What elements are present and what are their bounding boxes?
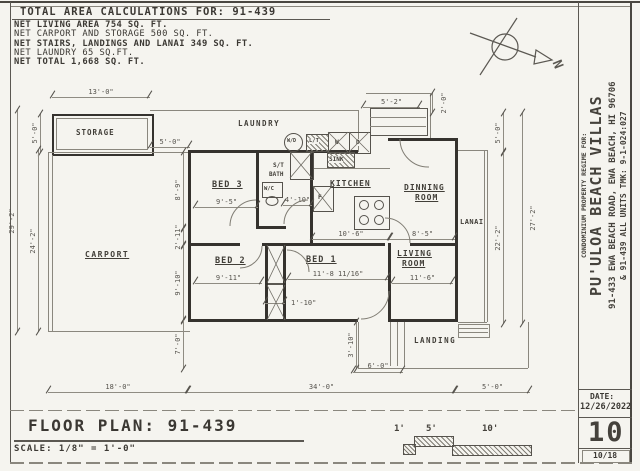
dim-label: 27'-2" [529, 205, 537, 230]
north-label: N [549, 58, 566, 71]
carport-left2 [52, 155, 53, 332]
entry-top [366, 93, 430, 94]
drawing-sheet: TOTAL AREA CALCULATIONS FOR: 91-439 NET … [0, 0, 640, 471]
dim-right-outer: 27'-2" [522, 113, 523, 323]
dim-label: 6'-0" [367, 362, 388, 370]
landing-right [528, 322, 529, 368]
dim-landing-depth: 3'-10" [356, 322, 357, 368]
room-label-bed2: BED 2 [215, 256, 246, 266]
room-label-carport: CARPORT [85, 250, 129, 259]
north-arrowhead [534, 50, 552, 64]
dim-bottom-left: 7'-0" [183, 320, 184, 368]
stove-box [354, 196, 390, 230]
dim-bed1-width: 11'-8 11/16" [288, 279, 388, 280]
room-label-lanai: LANAI [460, 218, 484, 226]
dim-bed2-width: 9'-11" [195, 283, 262, 284]
carport-left [48, 152, 49, 332]
kitchen-sink-label: SINK [329, 156, 343, 163]
pagebox-bottom [578, 448, 632, 449]
north-arrow [470, 18, 552, 75]
dim-label: 8'-5" [412, 230, 433, 238]
carport-top [48, 152, 188, 153]
dim-label: 10'-6" [338, 230, 363, 238]
landing-left [358, 322, 359, 368]
lanai-top [458, 150, 487, 151]
dim-label: 4'-10" [285, 196, 310, 204]
scalebar-label-5: 5' [426, 424, 437, 434]
closet-right [283, 243, 286, 322]
kitchen-counter [312, 168, 390, 169]
dim-label: 5'-0" [482, 383, 503, 391]
lanai-steps [458, 324, 490, 338]
dim-entry-width: 5'-2" [363, 107, 420, 108]
door-arc-entry [400, 139, 429, 167]
north-arrow-line [470, 33, 536, 57]
scalebar-bar-10 [452, 445, 532, 456]
floor-plan-scale: SCALE: 1/8" = 1'-0" [14, 444, 136, 454]
room-label-bath-2: BATH [269, 171, 283, 178]
wc-label: W/C [264, 186, 274, 192]
wall-mid-b [262, 243, 385, 246]
entry-steps [370, 108, 428, 136]
dim-label: 29'-2" [8, 208, 16, 233]
dim-left-outer: 29'-2" [17, 110, 18, 331]
entry-step-line [370, 117, 426, 118]
wall-right [455, 138, 458, 322]
dim-dining-width: 8'-5" [390, 239, 455, 240]
dim-label: 3'-10" [347, 332, 355, 357]
wall-mid-c [410, 243, 458, 246]
dim-lanai-top: 5'-0" [503, 113, 504, 152]
lanai-bottom [458, 322, 487, 323]
dim-entry-depth: 2'-0" [432, 93, 433, 112]
dim-storage-width: 13'-0" [52, 97, 150, 98]
dryer-box [349, 132, 371, 154]
plan-overlay: N [0, 0, 640, 471]
room-label-landing: LANDING [414, 336, 456, 345]
dim-right-inner: 22'-2" [503, 152, 504, 323]
dim-living-width: 11'-6" [392, 283, 453, 284]
dryer-letter: D [356, 139, 360, 146]
scalebar-label-10: 10' [482, 424, 498, 434]
washer-letter: W [335, 139, 339, 146]
room-label-bed3: BED 3 [212, 180, 243, 190]
dim-label: 8'-9" [174, 179, 182, 200]
dim-hall-width: 4'-10" [283, 205, 312, 206]
sheet-index: 10/18 [593, 451, 617, 460]
floor-plan: STORAGE CARPORT LAUNDRY [0, 0, 640, 471]
fridge-box [313, 186, 334, 212]
fridge-letter: F [318, 194, 322, 201]
dim-left-inner: 24'-2" [38, 150, 39, 331]
north-arrow-circle [492, 34, 518, 60]
project-units-tmk: & 91-439 ALL UNITS TMK: 9-1-024:027 [619, 8, 628, 383]
room-label-dining-2: ROOM [415, 193, 438, 202]
dim-label: 9'-11" [216, 274, 241, 282]
wall-bed3-bath [256, 150, 259, 229]
page-number: 10 [588, 417, 625, 448]
north-arrow-line [480, 18, 517, 75]
project-address: 91-433 EWA BEACH ROAD, EWA BEACH, HI 967… [608, 8, 618, 383]
room-label-bed1: BED 1 [306, 255, 337, 265]
room-label-laundry: LAUNDRY [238, 119, 280, 128]
laundry-tray-label: L/T [309, 138, 319, 144]
closet-left [265, 243, 268, 322]
landing-step [404, 322, 405, 366]
carport-bottom [48, 331, 190, 332]
scalebar-bar-5 [414, 436, 454, 447]
dim-label: 11'-6" [410, 274, 435, 282]
room-label-living-2: ROOM [402, 259, 425, 268]
washer-dryer-label: W/D [287, 138, 296, 144]
room-label-bath-1: S/T [273, 162, 284, 169]
wall-bath-bottom [256, 226, 286, 229]
room-label-living-1: LIVING [397, 249, 432, 258]
dim-label: 7'-0" [174, 333, 182, 354]
wall-bottom-b [388, 319, 458, 322]
dim-label: 9'-10" [174, 270, 182, 295]
dim-label: 24'-2" [29, 228, 37, 253]
dim-label: 34'-0" [309, 383, 334, 391]
dim-label: 2'-0" [440, 92, 448, 113]
wall-mid-a [188, 243, 240, 246]
laundry-top [150, 110, 358, 111]
dim-label: 5'-0" [494, 122, 502, 143]
entry-step-line [370, 126, 426, 127]
wall-left [188, 150, 191, 322]
landing-step [397, 322, 398, 366]
dim-bottom-carport: 18'-0" [48, 392, 188, 393]
date-value: 12/26/2022 [580, 402, 631, 412]
lanai-right2 [487, 150, 488, 322]
bathtub-box [290, 152, 314, 180]
washer-box [328, 132, 350, 154]
dim-label: 5'-0" [159, 138, 180, 146]
dim-bottom-landing: 5'-0" [455, 392, 530, 393]
lanai-right1 [484, 150, 485, 322]
dim-label: 9'-5" [216, 198, 237, 206]
lanai-step-line [458, 332, 488, 333]
dim-landing-width: 6'-0" [353, 372, 403, 373]
dim-label: 13'-0" [88, 88, 113, 96]
date-label: DATE: [590, 392, 614, 401]
floor-plan-title: FLOOR PLAN: 91-439 [28, 416, 237, 435]
scalebar-label-1: 1' [394, 424, 405, 434]
room-label-dining-1: DINNING [404, 183, 445, 192]
dim-bottom-house: 34'-0" [188, 392, 455, 393]
lanai-step-line [458, 328, 488, 329]
dim-label: 22'-2" [494, 225, 502, 250]
dim-label: 11'-8 11/16" [313, 270, 364, 278]
wall-dining-top [388, 138, 458, 141]
floor-plan-title-underline [14, 440, 304, 442]
project-name: PU'ULOA BEACH VILLAS [587, 8, 605, 383]
room-label-kitchen: KITCHEN [330, 179, 371, 188]
datebox-top [578, 389, 632, 390]
dim-closet-width: 1'-10" [265, 303, 285, 304]
door-arc-landing [361, 291, 389, 319]
dim-kitchen-width: 10'-6" [312, 239, 390, 240]
dim-label: 18'-0" [105, 383, 130, 391]
dim-label: 5'-0" [31, 122, 39, 143]
dim-bed3-depth: 8'-9" [183, 152, 184, 228]
landing-step [390, 322, 391, 366]
room-label-storage: STORAGE [76, 128, 115, 137]
dim-label: 5'-2" [381, 98, 402, 106]
dim-label: 1'-10" [291, 299, 316, 307]
wall-bottom-a [188, 319, 358, 322]
dim-bed3-width: 9'-5" [195, 207, 258, 208]
dim-bed2-depth: 9'-10" [183, 245, 184, 320]
